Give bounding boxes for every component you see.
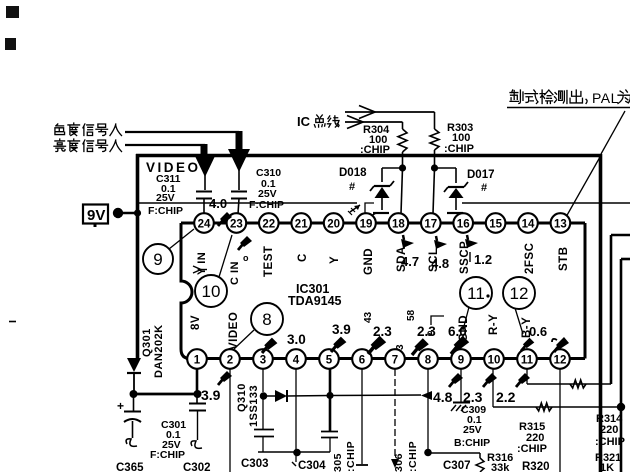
svg-text:4: 4 xyxy=(293,355,300,367)
svg-text:19: 19 xyxy=(360,219,373,231)
svg-text:o: o xyxy=(427,328,433,338)
svg-text:Q310: Q310 xyxy=(236,383,248,412)
svg-text:25V: 25V xyxy=(156,192,175,204)
svg-text:1SS133: 1SS133 xyxy=(248,385,260,427)
svg-text::CHIP: :CHIP xyxy=(407,441,419,472)
svg-text:2FSC: 2FSC xyxy=(524,243,536,274)
svg-text:C365: C365 xyxy=(116,462,144,472)
svg-text:F:CHIP: F:CHIP xyxy=(249,199,284,211)
svg-text:TEST: TEST xyxy=(263,246,275,277)
svg-text:R-Y: R-Y xyxy=(488,314,500,335)
svg-text:18: 18 xyxy=(392,219,405,231)
svg-text:8V: 8V xyxy=(190,315,202,330)
svg-text:58: 58 xyxy=(406,309,417,321)
svg-text:43: 43 xyxy=(363,311,374,323)
svg-text:10: 10 xyxy=(488,355,501,367)
svg-text:1: 1 xyxy=(194,355,201,367)
svg-text:306: 306 xyxy=(393,453,405,472)
svg-text:11: 11 xyxy=(521,355,534,367)
svg-text:3.9: 3.9 xyxy=(332,322,351,337)
svg-text:8: 8 xyxy=(425,355,432,367)
svg-text:C IN: C IN xyxy=(229,261,241,285)
svg-text:C302: C302 xyxy=(183,462,211,472)
svg-text:o: o xyxy=(243,253,249,263)
svg-text:#: # xyxy=(349,181,355,193)
svg-text:22: 22 xyxy=(262,219,275,231)
svg-text:D018: D018 xyxy=(339,167,367,179)
svg-text:21: 21 xyxy=(295,219,308,231)
svg-text:3.0: 3.0 xyxy=(287,332,306,347)
svg-text::CHIP: :CHIP xyxy=(444,143,474,155)
svg-text:2: 2 xyxy=(227,355,233,367)
svg-text:4.8: 4.8 xyxy=(433,389,453,405)
svg-text:STB: STB xyxy=(558,247,570,272)
svg-text:TDA9145: TDA9145 xyxy=(288,294,342,308)
svg-text:16: 16 xyxy=(457,219,470,231)
svg-text:13: 13 xyxy=(554,219,567,231)
svg-text:8: 8 xyxy=(262,310,271,329)
svg-text:20: 20 xyxy=(327,219,340,231)
svg-text:IC: IC xyxy=(297,114,311,129)
svg-text:GND: GND xyxy=(363,248,375,275)
svg-text:24: 24 xyxy=(198,219,211,231)
svg-text:PAL: PAL xyxy=(592,90,619,106)
svg-text:Y: Y xyxy=(329,256,341,264)
svg-text:C: C xyxy=(297,253,309,262)
svg-text:C303: C303 xyxy=(241,458,269,470)
svg-text:12: 12 xyxy=(510,284,529,303)
svg-text:C304: C304 xyxy=(298,460,326,472)
svg-text:2.3: 2.3 xyxy=(373,324,392,339)
svg-text:14: 14 xyxy=(522,219,535,231)
svg-text:7: 7 xyxy=(392,355,398,367)
svg-text:33k: 33k xyxy=(491,462,510,472)
svg-text::CHIP: :CHIP xyxy=(345,441,357,472)
svg-text:15: 15 xyxy=(489,219,502,231)
svg-text:6.0: 6.0 xyxy=(448,324,467,339)
svg-text:R320: R320 xyxy=(522,461,550,472)
svg-text:25V: 25V xyxy=(463,424,482,436)
svg-text:D017: D017 xyxy=(467,169,495,181)
svg-text:B:CHIP: B:CHIP xyxy=(454,437,490,449)
svg-text::CHIP: :CHIP xyxy=(360,144,390,156)
svg-text:3: 3 xyxy=(260,355,266,367)
svg-text:10: 10 xyxy=(202,282,221,301)
svg-text:3: 3 xyxy=(395,344,406,350)
svg-text:5: 5 xyxy=(326,355,333,367)
svg-text:11: 11 xyxy=(467,284,485,303)
svg-text:0.6: 0.6 xyxy=(529,324,547,339)
svg-text:4.7: 4.7 xyxy=(401,254,419,269)
svg-text:6: 6 xyxy=(359,355,365,367)
svg-text:1.2: 1.2 xyxy=(474,252,492,267)
svg-text:305: 305 xyxy=(332,453,344,472)
svg-text:Q301: Q301 xyxy=(141,328,153,357)
svg-text:DAN202K: DAN202K xyxy=(153,324,165,378)
svg-text:F:CHIP: F:CHIP xyxy=(150,449,185,461)
svg-text:2.2: 2.2 xyxy=(496,389,516,405)
svg-text:9: 9 xyxy=(153,250,162,269)
svg-text:4.8: 4.8 xyxy=(431,256,449,271)
svg-text:3.9: 3.9 xyxy=(201,387,221,403)
svg-text::CHIP: :CHIP xyxy=(517,443,547,455)
svg-text:220: 220 xyxy=(600,424,618,436)
svg-text:9: 9 xyxy=(458,355,464,367)
svg-text:C307: C307 xyxy=(443,460,471,472)
svg-text:F:CHIP: F:CHIP xyxy=(148,205,183,217)
svg-text:1K: 1K xyxy=(600,462,614,472)
svg-text:#: # xyxy=(481,182,487,194)
svg-text:23: 23 xyxy=(230,219,243,231)
svg-text:+: + xyxy=(117,399,124,413)
svg-text:12: 12 xyxy=(554,355,567,367)
svg-text:9V: 9V xyxy=(87,207,105,224)
svg-text:17: 17 xyxy=(424,219,437,231)
